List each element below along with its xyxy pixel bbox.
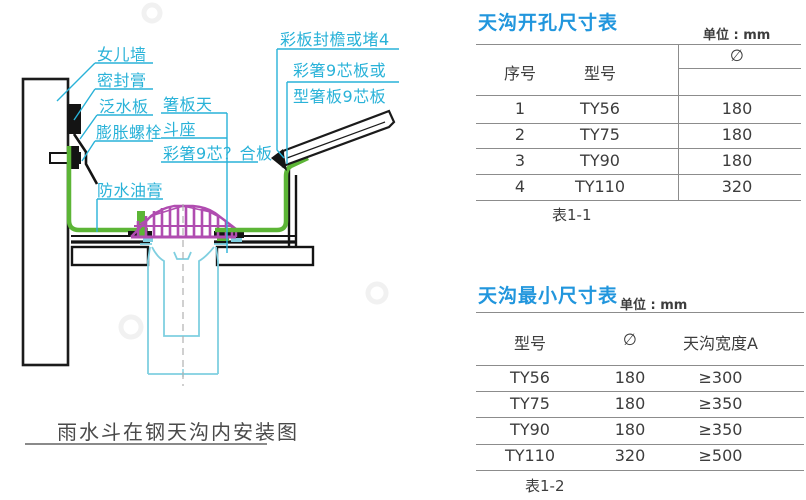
diagram-caption: 雨水斗在钢天沟内安装图 [57,416,299,445]
label-expansion-bolt: 膨胀螺栓 [96,123,162,142]
label-core-board-1: 彩箸9芯板或 [293,61,386,80]
table1-caption: 表1-1 [552,204,592,225]
gutter-wall-right [289,169,296,246]
table2-r1-diameter: 180 [600,368,660,387]
installation-diagram: 女儿墙 密封膏 泛水板 膨胀螺栓 箸板天 斗座 彩箸9芯？合板 防水油膏 彩板封… [0,0,470,500]
table2-r2-width: ≥350 [673,394,768,413]
table2-line-header [476,365,804,366]
label-flashing: 泛水板 [99,97,149,116]
table2-caption: 表1-2 [525,475,565,496]
table2-line-row3 [476,444,804,445]
table2-r3-width: ≥350 [673,420,768,439]
table1-r4-model: TY110 [565,177,635,196]
drain-funnel-pipe [140,244,228,377]
table2-header-model: 型号 [500,330,560,354]
table1-r2-diameter: 180 [707,125,767,144]
table1-line-subheader [678,68,801,69]
table2-r1-model: TY56 [500,368,560,387]
table2-header-width: 天沟宽度A [673,330,768,354]
table2-r3-diameter: 180 [600,420,660,439]
gutter-opening-size-table: 天沟开孔尺寸表 单位 : mm 序号 型号 ∅ 1 TY56 180 2 TY7… [470,0,806,240]
table2-line-row2 [476,417,804,418]
table1-r3-model: TY90 [565,151,635,170]
gutter-min-size-table: 天沟最小尺寸表 单位 : mm 型号 ∅ 天沟宽度A TY56 180 ≥300… [470,278,806,500]
parapet-wall [23,79,68,365]
support-beam-right [217,247,313,265]
table1-r1-diameter: 180 [707,99,767,118]
table1-r4-no: 4 [490,177,550,196]
table2-r3-model: TY90 [500,420,560,439]
label-hopper-seat-2: 斗座 [163,120,196,139]
table2-r1-width: ≥300 [673,368,768,387]
table1-r1-model: TY56 [565,99,635,118]
table1-line-header [476,95,801,96]
table2-line-top [476,312,804,313]
table2-unit: 单位 : mm [620,294,687,313]
table1-r4-diameter: 320 [707,177,767,196]
label-composite-board: 彩箸9芯？合板 [163,144,273,163]
table1-line-bottom [476,200,801,201]
table1-r2-model: TY75 [565,125,635,144]
table1-header-no: 序号 [490,60,550,84]
table1-line-top [476,44,801,45]
table1-r3-diameter: 180 [707,151,767,170]
table2-line-row1 [476,391,804,392]
label-core-board-2: 型箸板9芯板 [293,87,386,106]
roof-panel [283,111,394,166]
table1-line-row3 [476,174,801,175]
table2-header-diameter: ∅ [600,330,660,349]
gutter-lining-right [215,158,308,230]
support-beam-left [72,247,148,265]
table1-header-diameter: ∅ [707,46,767,65]
page: 女儿墙 密封膏 泛水板 膨胀螺栓 箸板天 斗座 彩箸9芯？合板 防水油膏 彩板封… [0,0,806,500]
label-sealant: 密封膏 [97,71,147,90]
label-waterproof-grease: 防水油膏 [97,181,163,200]
table1-r2-no: 2 [490,125,550,144]
table2-title: 天沟最小尺寸表 [478,281,618,308]
label-hopper-seat-1: 箸板天 [163,95,213,114]
table1-line-row1 [476,123,801,124]
table2-r2-model: TY75 [500,394,560,413]
table2-r2-diameter: 180 [600,394,660,413]
table1-header-model: 型号 [570,60,630,84]
label-parapet: 女儿墙 [97,45,147,64]
table2-r4-width: ≥500 [673,446,768,465]
table2-r4-diameter: 320 [600,446,660,465]
table1-line-row2 [476,148,801,149]
label-eave-closure: 彩板封檐或堵4 [280,30,390,49]
table1-title: 天沟开孔尺寸表 [478,8,618,35]
table1-r3-no: 3 [490,151,550,170]
table1-r1-no: 1 [490,99,550,118]
table2-r4-model: TY110 [500,446,560,465]
table2-line-bottom [476,470,804,471]
table1-unit: 单位 : mm [703,24,770,43]
